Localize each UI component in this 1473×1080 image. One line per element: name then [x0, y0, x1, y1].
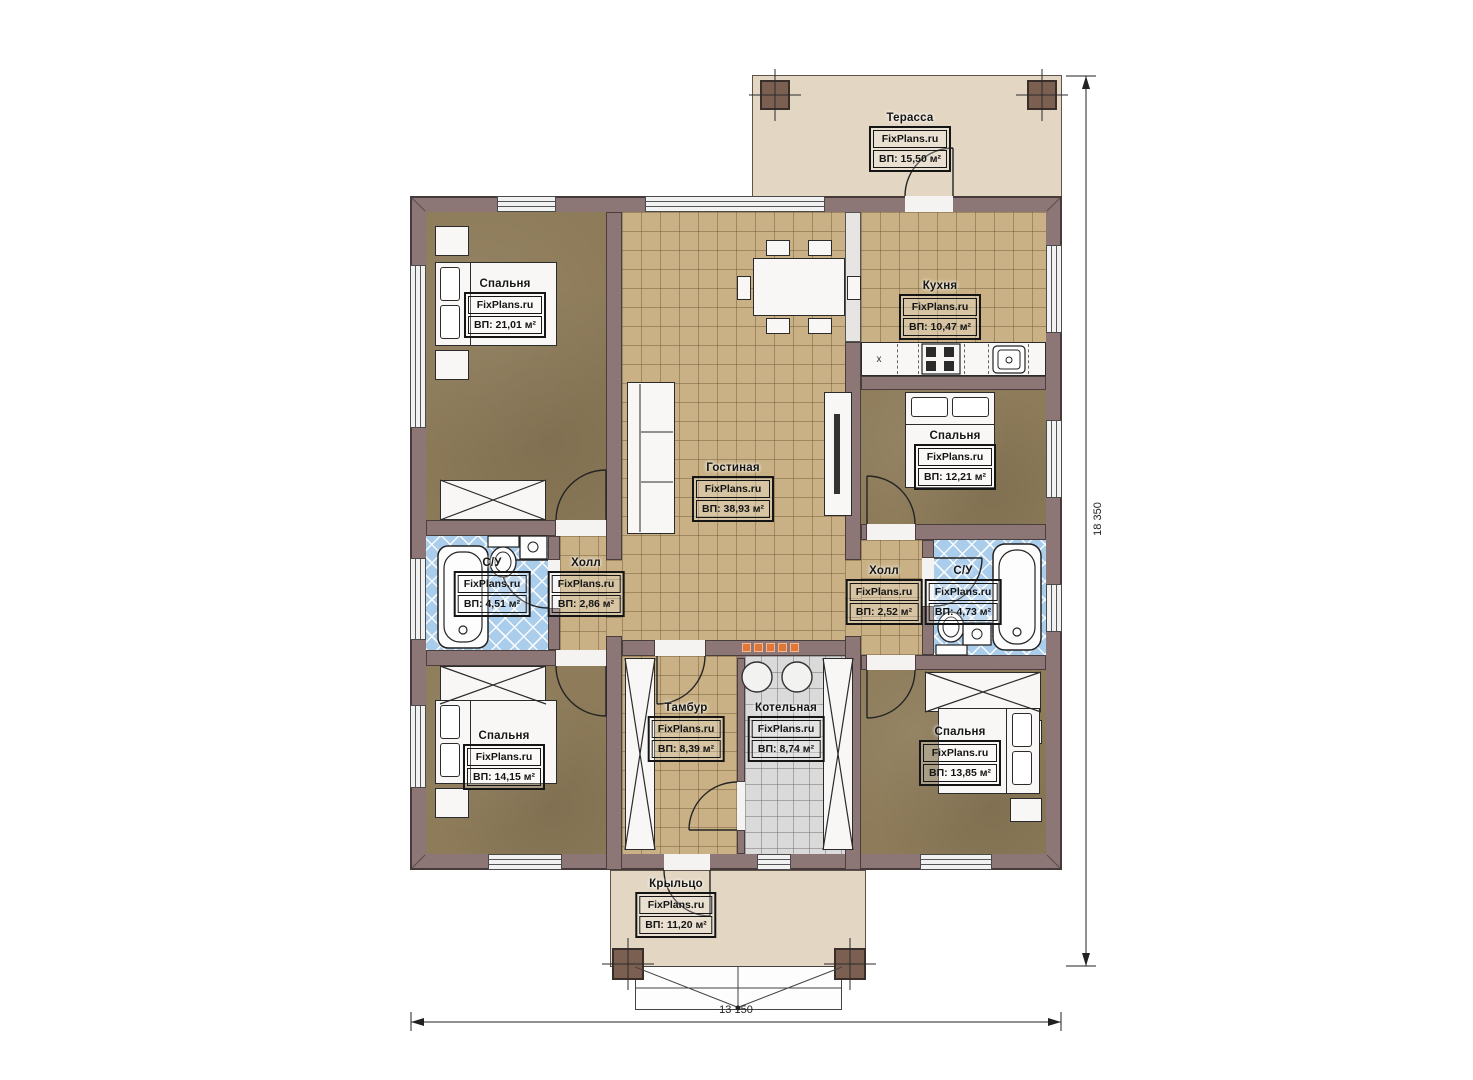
window [1046, 420, 1062, 498]
wall [426, 520, 556, 536]
wall [915, 655, 1046, 670]
wall [606, 212, 622, 560]
window [1046, 245, 1062, 333]
window [488, 854, 562, 870]
blanket-line [906, 424, 994, 425]
terrace-column [760, 80, 790, 110]
counter-divider [1028, 344, 1029, 374]
radiator [766, 643, 775, 652]
window [920, 854, 992, 870]
room-label-bath-left: С/У FixPlans.ruВП: 4,51 м² [454, 557, 531, 617]
chair [847, 276, 861, 300]
wall [426, 650, 556, 666]
pillow [440, 705, 460, 739]
pillow [440, 267, 460, 301]
window [410, 558, 426, 640]
front-door-opening [664, 854, 710, 870]
dining-table [753, 258, 845, 316]
chair [808, 318, 832, 334]
wall [861, 376, 1046, 390]
wall [915, 524, 1046, 540]
room-label-bedroom-bl: Спальня FixPlans.ruВП: 14,15 м² [463, 730, 545, 790]
sofa [627, 382, 675, 534]
room-label-kitchen: Кухня FixPlans.ruВП: 10,47 м² [899, 280, 981, 340]
wall [606, 636, 622, 870]
window [1046, 584, 1062, 632]
room-label-terrace: Терасса FixPlans.ruВП: 15,50 м² [869, 112, 951, 172]
room-label-bedroom-br: Спальня FixPlans.ruВП: 13,85 м² [919, 726, 1001, 786]
counter-divider [964, 344, 965, 374]
floor-plan: x [0, 0, 1473, 1080]
room-label-porch: Крыльцо FixPlans.ruВП: 11,20 м² [635, 878, 716, 938]
radiator [790, 643, 799, 652]
room-label-bath-right: С/У FixPlans.ruВП: 4,73 м² [925, 565, 1002, 625]
radiator [742, 643, 751, 652]
wall [737, 658, 745, 782]
wall [922, 540, 934, 558]
chair [766, 240, 790, 256]
pillow [440, 743, 460, 777]
pillow [911, 397, 948, 417]
nightstand [435, 788, 469, 818]
terrace-column [1027, 80, 1057, 110]
counter-divider [918, 344, 919, 374]
room-label-tambour: Тамбур FixPlans.ruВП: 8,39 м² [648, 702, 725, 762]
dimension-height-label: 18 350 [1092, 479, 1104, 559]
chair [766, 318, 790, 334]
chair [737, 276, 751, 300]
tv [834, 414, 840, 494]
door-opening [867, 655, 915, 670]
window [410, 265, 426, 428]
room-label-hall-right: Холл FixPlans.ruВП: 2,52 м² [846, 565, 923, 625]
nightstand [435, 350, 469, 380]
window [410, 705, 426, 788]
fridge-marker: x [862, 343, 896, 375]
porch-column [834, 948, 866, 980]
pillow [952, 397, 989, 417]
counter-divider [988, 344, 989, 374]
blanket-line [1006, 709, 1007, 793]
window [645, 196, 825, 212]
wardrobe [440, 666, 546, 704]
window [497, 196, 556, 212]
radiator [754, 643, 763, 652]
window [757, 854, 791, 870]
porch-column [612, 948, 644, 980]
door-opening [556, 520, 606, 536]
nightstand [1010, 798, 1042, 822]
nightstand [435, 226, 469, 256]
wardrobe [440, 480, 546, 520]
door-opening [867, 524, 915, 540]
wall [622, 640, 655, 656]
counter-divider [897, 344, 898, 374]
door-opening [737, 782, 745, 830]
wall [737, 830, 745, 854]
chair [808, 240, 832, 256]
terrace-door-opening [905, 196, 953, 212]
room-label-living: Гостиная FixPlans.ruВП: 38,93 м² [692, 462, 774, 522]
dimension-width-label: 13 150 [700, 1004, 772, 1016]
pillow [1012, 713, 1032, 747]
pillow [1012, 751, 1032, 785]
room-label-bedroom-tl: Спальня FixPlans.ruВП: 21,01 м² [464, 278, 546, 338]
wardrobe [925, 672, 1041, 712]
door-opening [655, 640, 705, 656]
room-label-hall-left: Холл FixPlans.ruВП: 2,86 м² [548, 557, 625, 617]
pillow [440, 305, 460, 339]
room-label-bedroom-right: Спальня FixPlans.ruВП: 12,21 м² [914, 430, 996, 490]
wardrobe [823, 658, 853, 850]
radiator [778, 643, 787, 652]
room-label-boiler: Котельная FixPlans.ruВП: 8,74 м² [748, 702, 825, 762]
door-opening [556, 650, 606, 666]
